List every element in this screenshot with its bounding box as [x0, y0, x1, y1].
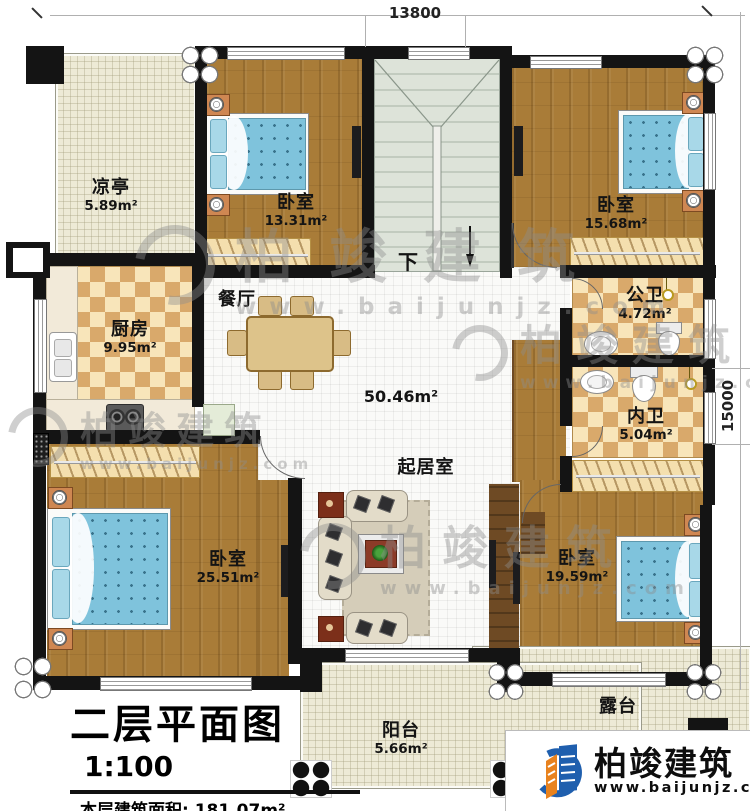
flue-box-inner — [13, 248, 43, 272]
top-dimension-value: 13800 — [375, 4, 455, 22]
title-underline — [70, 790, 360, 794]
room-label-inner-bath: 内卫 5.04m² — [619, 407, 672, 443]
potted-plant — [372, 545, 388, 561]
wall — [192, 265, 204, 407]
corridor-floor — [512, 340, 566, 482]
chair — [227, 330, 247, 356]
pillow — [52, 569, 70, 619]
wall — [362, 46, 374, 278]
right-dimension-value: 15000 — [719, 374, 737, 438]
wall — [700, 505, 712, 686]
wall — [560, 456, 572, 492]
room-label-bedroom-top-left: 卧室 13.31m² — [265, 193, 328, 229]
brand-text-group: 柏竣建筑 www.baijunjz.com — [594, 747, 750, 796]
sofa — [318, 516, 352, 600]
wall-vent — [33, 433, 49, 465]
nightstand — [205, 94, 230, 116]
side-table — [318, 616, 344, 642]
wall — [33, 445, 46, 690]
bed — [618, 110, 708, 194]
nightstand — [48, 628, 73, 650]
sofa-pillow — [355, 619, 373, 637]
stove — [106, 404, 144, 432]
bathroom-sink — [580, 370, 614, 394]
nightstand — [48, 487, 73, 509]
top-dimension-bracket-right — [465, 15, 466, 47]
stairs-direction-label: 下 — [398, 246, 418, 275]
side-table — [318, 492, 344, 518]
brand-name: 柏竣建筑 — [594, 747, 750, 780]
room-label-living: 起居室 — [398, 458, 455, 479]
chair — [290, 296, 314, 316]
brand-website: www.baijunjz.com — [594, 780, 750, 796]
wall — [288, 478, 302, 664]
staircase — [374, 58, 500, 272]
wall — [195, 265, 375, 278]
brand-logo-icon — [532, 741, 586, 803]
room-label-bedroom-top-right: 卧室 15.68m² — [585, 196, 648, 232]
chair — [258, 296, 282, 316]
column-cluster — [181, 46, 219, 84]
window — [345, 649, 469, 663]
room-label-terrace: 露台 — [599, 697, 637, 718]
right-dimension-bracket-bottom — [712, 444, 750, 445]
bed — [47, 508, 171, 630]
room-label-kitchen: 厨房 9.95m² — [103, 320, 156, 356]
sofa — [346, 490, 408, 522]
pillow — [210, 119, 227, 153]
wall — [33, 430, 205, 444]
floor-area-text: 本层建筑面积: 181.07m² — [70, 800, 360, 811]
kitchen-sink — [49, 332, 77, 382]
floor-plan: 13800 15000 — [0, 0, 750, 811]
light-bulb — [685, 378, 697, 390]
window — [408, 47, 470, 60]
window — [34, 299, 47, 393]
room-label-dining: 餐厅 — [218, 290, 256, 311]
column-cluster — [686, 663, 722, 701]
wardrobe — [50, 446, 200, 478]
bed — [205, 113, 309, 195]
room-label-public-bath: 公卫 4.72m² — [618, 286, 671, 322]
kitchen-door — [203, 404, 235, 436]
pillow — [52, 517, 70, 567]
sofa-pillow — [353, 495, 371, 513]
room-label-pavilion: 凉亭 5.89m² — [84, 178, 137, 214]
right-dimension-bracket-top — [712, 368, 750, 369]
tv — [489, 540, 496, 588]
window — [530, 56, 602, 69]
tv — [352, 126, 361, 178]
window — [704, 392, 716, 444]
wardrobe — [572, 460, 704, 492]
wall — [300, 648, 322, 692]
column-cluster — [14, 655, 52, 701]
wall — [26, 46, 64, 84]
window — [704, 113, 716, 190]
column-cluster — [488, 663, 524, 701]
plan-scale: 1:100 — [84, 750, 173, 783]
window — [552, 673, 666, 687]
toilet — [630, 366, 658, 402]
room-label-bedroom-bottom-right: 卧室 19.59m² — [546, 549, 609, 585]
sofa-pillow — [325, 549, 343, 567]
pillow — [210, 155, 227, 189]
pavilion-floor — [55, 53, 197, 257]
dining-table — [246, 316, 334, 372]
wall — [560, 355, 715, 367]
tv — [513, 552, 520, 604]
window — [704, 299, 716, 359]
wall — [38, 253, 208, 266]
sofa-pillow — [379, 619, 397, 637]
window — [100, 677, 252, 691]
top-dimension-bracket-left — [365, 15, 366, 47]
nightstand — [205, 194, 230, 216]
bathroom-sink — [584, 331, 618, 357]
chair — [258, 370, 282, 390]
room-label-living-area: 50.46m² — [364, 388, 438, 406]
bed — [616, 536, 710, 622]
chair — [331, 330, 351, 356]
toilet — [656, 322, 682, 356]
sofa-pillow — [325, 575, 343, 593]
sofa-pillow — [377, 495, 395, 513]
column-cluster — [686, 46, 724, 84]
wall — [560, 308, 572, 426]
wall — [560, 265, 716, 278]
pillow — [688, 117, 704, 151]
tv — [514, 126, 523, 176]
chair — [290, 370, 314, 390]
sofa — [346, 612, 408, 644]
room-label-bedroom-bottom-left: 卧室 25.51m² — [197, 550, 260, 586]
room-label-balcony: 阳台 5.66m² — [374, 721, 427, 757]
window — [227, 47, 345, 60]
right-dimension-line — [740, 12, 741, 690]
title-block: 二层平面图1:100 本层建筑面积: 181.07m² 层高: 3.6m — [70, 692, 360, 811]
dimension-tick — [31, 7, 42, 18]
sofa-pillow — [325, 523, 343, 541]
pillow — [688, 153, 704, 187]
brand-logo-box: 柏竣建筑 www.baijunjz.com — [505, 730, 750, 811]
plan-title: 二层平面图 — [70, 692, 285, 750]
